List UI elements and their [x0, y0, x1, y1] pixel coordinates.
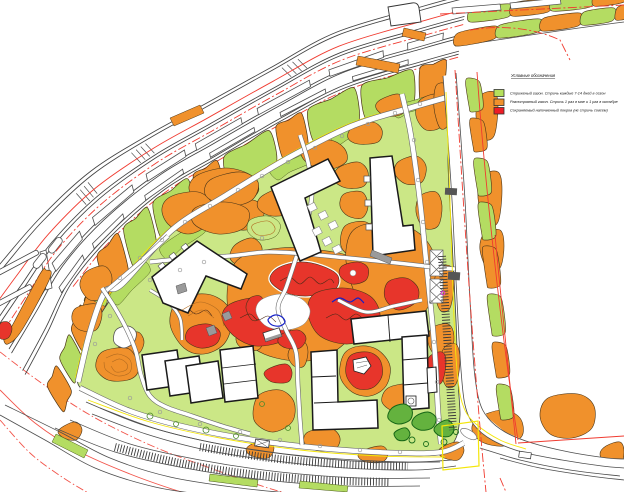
svg-text:Сохраняемый напочвенный покров: Сохраняемый напочвенный покров (не стрич…: [510, 109, 608, 113]
svg-text:Условные обозначения: Условные обозначения: [511, 73, 556, 78]
svg-text:Разнотравный газон. Стричь 1: Разнотравный газон. Стричь 1 раз в мае и…: [510, 100, 618, 104]
svg-text:Стриженый газон. Стричь каждые: Стриженый газон. Стричь каждые 7-14 дней…: [510, 92, 606, 96]
